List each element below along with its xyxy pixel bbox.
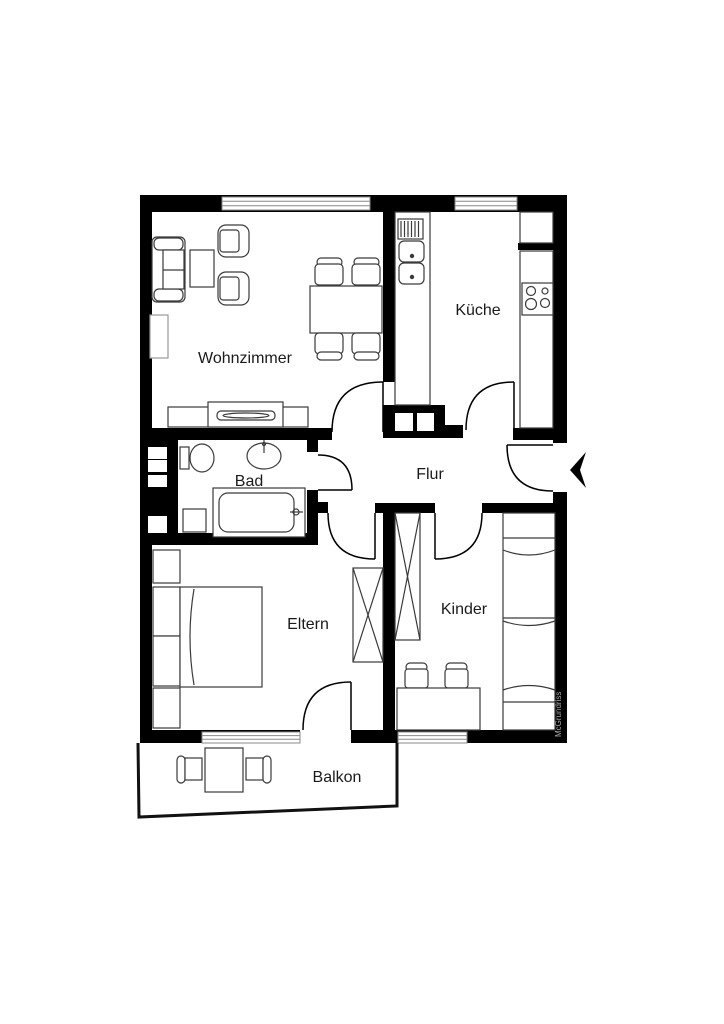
closet-unit (153, 550, 180, 583)
page: Wohnzimmer Küche Bad Flur Eltern Kinder … (0, 0, 724, 1024)
watermark-text: McGrundriss (554, 692, 563, 737)
door-kitchen (466, 382, 514, 430)
wardrobe (395, 513, 420, 640)
balcony-chair (177, 756, 202, 783)
room-label-hallway: Flur (416, 466, 444, 483)
duct-cutout (395, 413, 413, 431)
sideboard (168, 402, 308, 427)
closet-unit (153, 688, 180, 728)
wall-hall-bottom-stub (307, 502, 328, 513)
wall-bath-right-upper (307, 428, 318, 452)
desk-chair (445, 663, 468, 688)
room-label-bathroom: Bad (235, 473, 263, 490)
dish-drainer (398, 219, 423, 239)
wall-livingroom-kitchen (383, 212, 395, 382)
duct-cutout (148, 460, 167, 472)
wardrobe (353, 568, 383, 662)
coffee-table (190, 250, 214, 287)
window-living-room (222, 197, 370, 210)
door-living-room (332, 382, 383, 432)
wall-niche (150, 315, 168, 358)
door-bathroom (318, 455, 352, 490)
door-balcony (303, 682, 351, 730)
closet-unit (153, 587, 180, 636)
kids-bed (503, 513, 555, 730)
room-label-living-room: Wohnzimmer (198, 350, 293, 367)
armchair (218, 272, 249, 305)
duct-cutout (148, 447, 167, 459)
bathroom-sink (247, 440, 281, 469)
wall-kitchen-stub (518, 243, 553, 250)
furniture-living-room (150, 225, 382, 427)
balcony-table (205, 748, 243, 792)
entrance-arrow-icon (570, 452, 586, 488)
wall-hall-bottom-right (482, 503, 553, 513)
kitchen-tall-unit (520, 212, 553, 243)
wall-right-upper (553, 195, 567, 443)
duct-cutout (148, 475, 167, 487)
washing-machine (183, 509, 206, 532)
double-bed (180, 587, 262, 687)
floor-plan: Wohnzimmer Küche Bad Flur Eltern Kinder … (0, 0, 724, 1024)
sofa (152, 237, 185, 302)
desk (397, 688, 480, 730)
dining-chair (315, 258, 343, 285)
bathtub (213, 488, 305, 537)
duct-block-kitchen (383, 405, 445, 438)
furniture (150, 212, 555, 792)
toilet (180, 444, 214, 472)
wall-kitchen-bottom-right (513, 428, 567, 440)
balcony-chair (246, 756, 271, 783)
room-label-kitchen: Küche (455, 302, 500, 319)
duct-cutout (417, 413, 434, 431)
room-label-balcony: Balkon (313, 769, 362, 786)
wall-kitchen-bottom-left (445, 425, 463, 438)
dining-chair (352, 258, 380, 285)
dining-table (310, 286, 382, 333)
duct-cutout (148, 516, 167, 533)
door-entrance (507, 445, 553, 491)
furniture-kids (395, 513, 555, 730)
kitchen-counter-right (520, 251, 553, 428)
closet-unit (153, 636, 180, 686)
wall-hall-bottom-mid (375, 503, 435, 513)
desk-chair (405, 663, 428, 688)
wall-parents-kids (383, 513, 395, 730)
furniture-balcony (177, 748, 271, 792)
door-kids (435, 513, 482, 559)
window-parents (202, 732, 300, 743)
window-kids (398, 732, 467, 743)
dining-chair (315, 333, 343, 360)
cooktop (522, 283, 553, 315)
armchair (218, 225, 249, 257)
window-kitchen (455, 197, 517, 210)
room-label-kids: Kinder (441, 601, 488, 618)
dining-chair (352, 333, 380, 360)
wall-bath-right-lower (307, 490, 318, 545)
door-parents (328, 513, 375, 559)
furniture-parents (153, 550, 383, 728)
room-label-parents: Eltern (287, 616, 329, 633)
